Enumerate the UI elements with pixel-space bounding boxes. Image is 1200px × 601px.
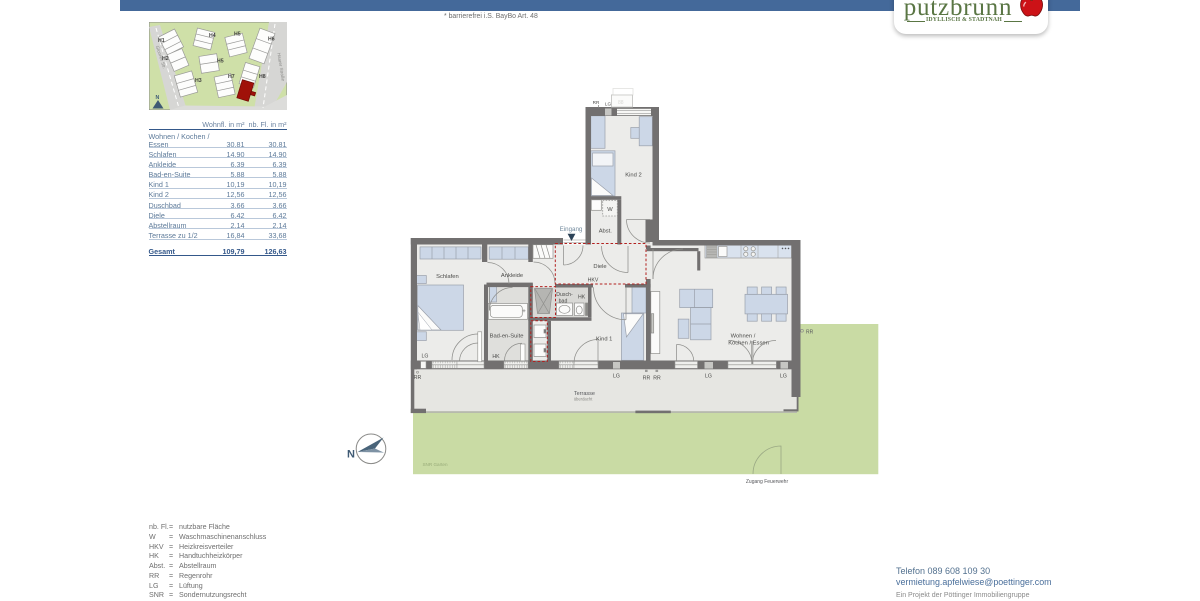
svg-text:H7: H7	[228, 74, 235, 80]
svg-text:W: W	[607, 207, 613, 213]
svg-text:H1: H1	[158, 38, 165, 44]
svg-text:Kochen / Essen: Kochen / Essen	[728, 341, 769, 347]
svg-text:Zugang Feuerwehr: Zugang Feuerwehr	[746, 479, 789, 485]
svg-text:N: N	[156, 95, 160, 101]
svg-text:Wohnen /: Wohnen /	[731, 333, 756, 339]
svg-text:RR: RR	[653, 376, 661, 382]
svg-text:Dusch-: Dusch-	[556, 292, 573, 298]
svg-text:HKV: HKV	[588, 277, 599, 283]
svg-text:LG: LG	[613, 373, 620, 379]
svg-text:H4: H4	[209, 33, 216, 39]
svg-text:N: N	[347, 449, 355, 461]
svg-text:H5: H5	[234, 32, 241, 38]
svg-text:LG: LG	[705, 373, 712, 379]
svg-text:H3: H3	[195, 78, 202, 84]
svg-text:Kind 2: Kind 2	[625, 173, 641, 179]
svg-text:HK: HK	[578, 295, 586, 301]
svg-text:Diele: Diele	[593, 264, 606, 270]
svg-text:LG: LG	[605, 102, 612, 107]
svg-text:RR: RR	[643, 376, 651, 382]
svg-text:Kind 1: Kind 1	[596, 336, 612, 342]
svg-text:H2: H2	[162, 56, 169, 62]
svg-text:SNR Garten: SNR Garten	[422, 462, 447, 467]
svg-text:LG: LG	[780, 373, 787, 379]
svg-text:RR: RR	[806, 329, 814, 335]
svg-text:Ankleide: Ankleide	[501, 273, 523, 279]
svg-text:LG: LG	[422, 354, 429, 360]
svg-text:bad: bad	[559, 299, 568, 305]
svg-text:RR: RR	[414, 375, 422, 381]
svg-text:Abst.: Abst.	[599, 229, 613, 235]
svg-text:Bad-en-Suite: Bad-en-Suite	[490, 334, 524, 340]
svg-text:überdacht: überdacht	[574, 396, 593, 401]
svg-text:H8: H8	[259, 74, 266, 80]
svg-text:Schlafen: Schlafen	[436, 274, 459, 280]
svg-text:Eingang: Eingang	[560, 226, 583, 233]
svg-text:H5: H5	[217, 59, 224, 65]
svg-text:RR: RR	[593, 100, 600, 105]
svg-text:H6: H6	[268, 37, 275, 43]
svg-text:88: 88	[618, 100, 624, 106]
svg-text:HK: HK	[492, 354, 500, 360]
